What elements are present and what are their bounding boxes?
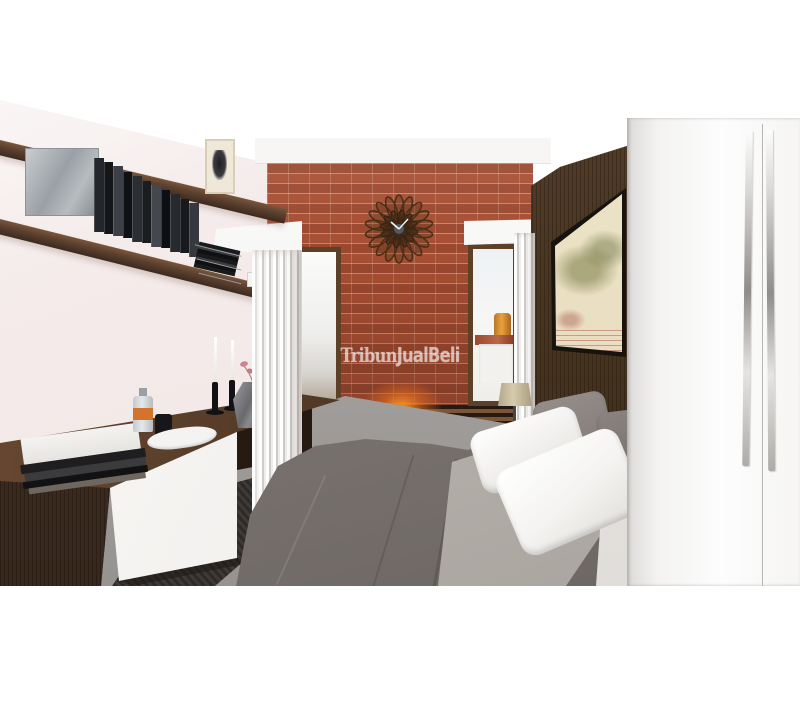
taper-candle-1 xyxy=(214,337,217,383)
wardrobe-door-seam xyxy=(762,124,763,586)
sunburst-wall-clock xyxy=(361,189,437,267)
glass-bottle xyxy=(133,396,153,432)
metal-box-decor xyxy=(25,148,99,216)
table-lamp-shade xyxy=(498,383,532,406)
water-tank-outside xyxy=(494,313,511,337)
right-window xyxy=(468,244,518,406)
white-margin-bottom xyxy=(0,586,800,720)
neighbor-wall-outside xyxy=(479,344,513,384)
bottle-label xyxy=(133,408,153,420)
candlestick-1-base xyxy=(206,410,224,415)
left-window-view xyxy=(301,252,336,402)
wire-magazine-rack xyxy=(194,240,244,288)
watermark: TribunJualBeli xyxy=(318,343,482,367)
right-window-view xyxy=(473,249,513,401)
candlestick-1 xyxy=(212,382,218,412)
white-margin-top xyxy=(0,0,800,100)
listing-photo-bedroom-render: TribunJualBeli xyxy=(0,0,800,720)
small-picture-art xyxy=(212,150,227,180)
book-spines-row xyxy=(94,150,209,255)
small-framed-picture xyxy=(205,139,235,194)
watermark-jualbeli: JualBeli xyxy=(397,343,460,367)
left-window xyxy=(296,247,341,407)
watermark-tribun: Tribun xyxy=(340,343,396,367)
ceiling-soffit xyxy=(255,138,551,164)
